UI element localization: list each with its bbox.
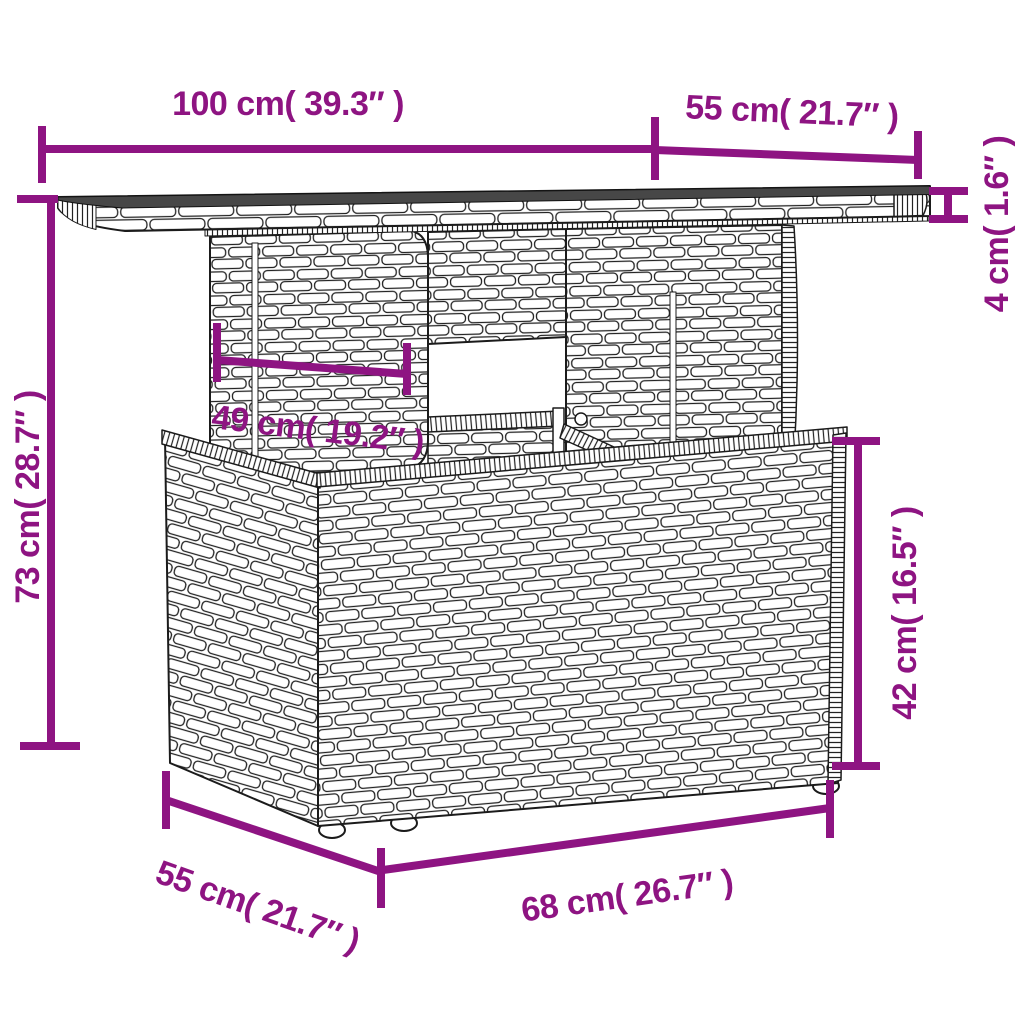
dim-label-overall-height: 73 cm( 28.7″ ) bbox=[9, 390, 47, 603]
connector-dot bbox=[575, 413, 587, 425]
dim-top-depth bbox=[655, 131, 918, 179]
dim-line bbox=[383, 808, 830, 870]
table-illustration bbox=[58, 186, 930, 838]
dim-label-base-height: 42 cm( 16.5″ ) bbox=[886, 506, 924, 719]
dim-label-top-width: 100 cm( 39.3″ ) bbox=[172, 85, 404, 123]
base-front-face bbox=[318, 434, 845, 826]
pedestal-right-seam bbox=[670, 292, 676, 460]
base-left-face bbox=[165, 437, 318, 826]
dim-top-thickness bbox=[929, 191, 968, 219]
dim-label-top-thickness: 4 cm( 1.6″ ) bbox=[978, 136, 1016, 313]
dim-top-width bbox=[42, 117, 655, 183]
tabletop bbox=[58, 186, 930, 236]
product-dimension-diagram: 100 cm( 39.3″ ) 55 cm( 21.7″ ) 4 cm( 1.6… bbox=[0, 0, 1024, 1024]
base-box bbox=[162, 427, 847, 838]
pedestal-right-edge-tube bbox=[782, 225, 798, 462]
dim-label-top-depth: 55 cm( 21.7″ ) bbox=[685, 88, 900, 135]
dim-label-base-depth: 55 cm( 21.7″ ) bbox=[151, 853, 365, 960]
dim-label-base-width: 68 cm( 26.7″ ) bbox=[519, 862, 736, 929]
dim-line bbox=[655, 150, 918, 160]
pedestal-back-panel bbox=[428, 229, 566, 344]
